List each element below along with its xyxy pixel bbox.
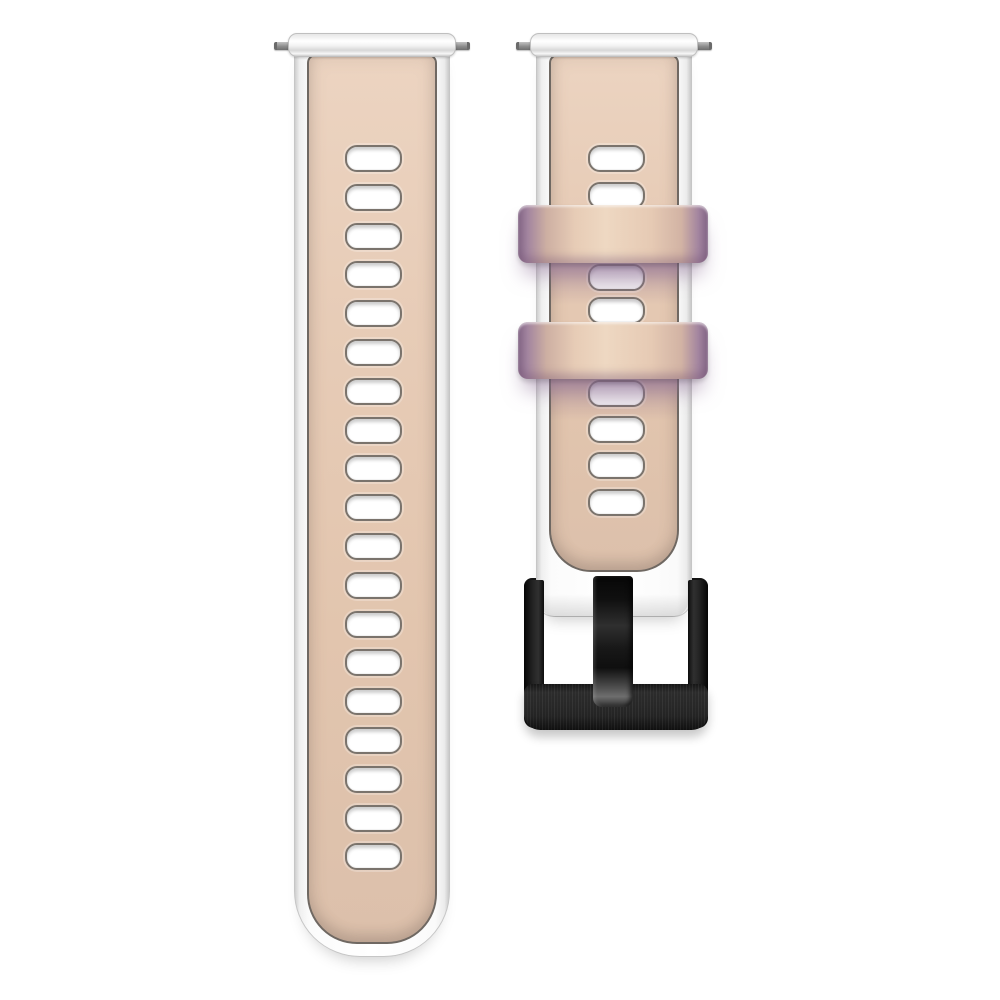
right-strap-holes (0, 0, 1000, 1000)
left-strap-holes (0, 0, 1000, 1000)
left-strap-beige-panel (307, 54, 437, 944)
right-strap-beige-panel (549, 54, 679, 572)
keeper-shadow-wash (551, 262, 677, 310)
keeper-loop-2 (518, 322, 708, 379)
left-strap-lug-bar (288, 33, 456, 57)
keeper-loop-1 (518, 205, 708, 263)
product-photo (0, 0, 1000, 1000)
keeper-shadow-wash (551, 378, 677, 426)
right-strap-lug-bar (530, 33, 698, 57)
buckle-prong (593, 576, 633, 707)
